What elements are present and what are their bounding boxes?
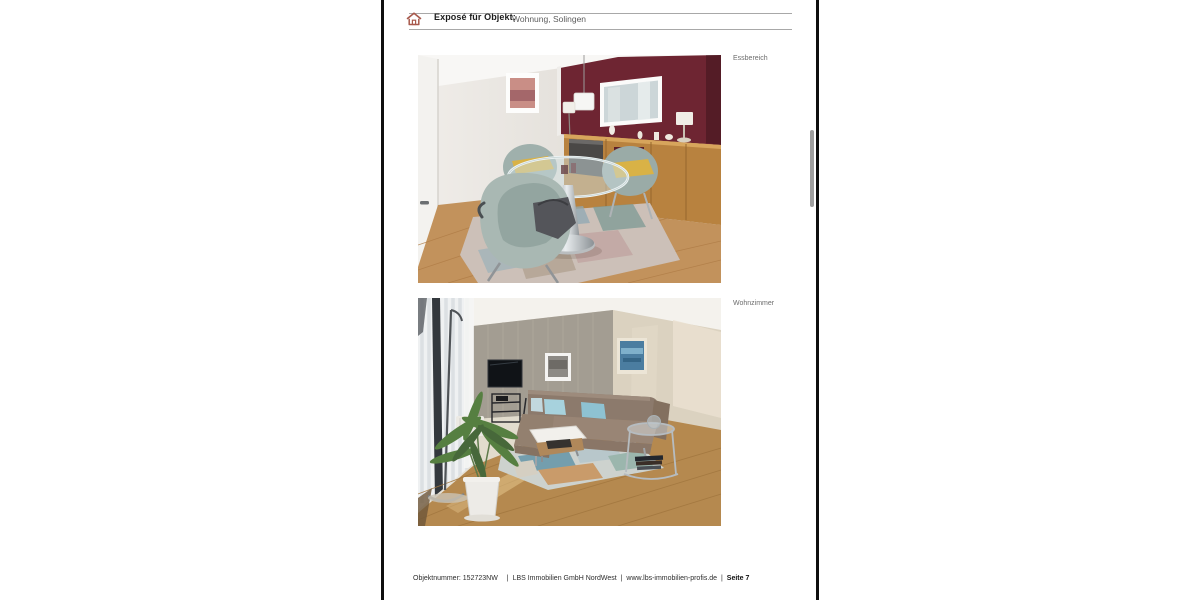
footer-website: www.lbs-immobilien-profis.de	[626, 575, 717, 582]
page-title: Exposé für Objekt:	[434, 12, 516, 22]
footer-page-number: Seite 7	[727, 575, 750, 582]
footer-company: LBS Immobilien GmbH NordWest	[513, 575, 617, 582]
photo-label-wohnzimmer: Wohnzimmer	[733, 300, 774, 307]
scrollbar-thumb[interactable]	[810, 130, 814, 207]
object-name: Wohnung, Solingen	[512, 14, 586, 24]
photo-label-essbereich: Essbereich	[733, 55, 768, 62]
viewer-background: Exposé für Objekt: Wohnung, Solingen	[0, 0, 1200, 600]
footer-separator: |	[507, 575, 509, 582]
footer-separator: |	[721, 575, 723, 582]
footer-objektnummer: Objektnummer: 152723NW	[413, 575, 498, 582]
footer: Objektnummer: 152723NW | LBS Immobilien …	[413, 575, 749, 582]
home-icon	[406, 12, 422, 26]
photo-essbereich	[418, 55, 721, 283]
photo-wohnzimmer	[418, 298, 721, 526]
header-bottom-divider	[409, 29, 792, 30]
footer-separator: |	[621, 575, 623, 582]
document-page: Exposé für Objekt: Wohnung, Solingen	[381, 0, 819, 600]
